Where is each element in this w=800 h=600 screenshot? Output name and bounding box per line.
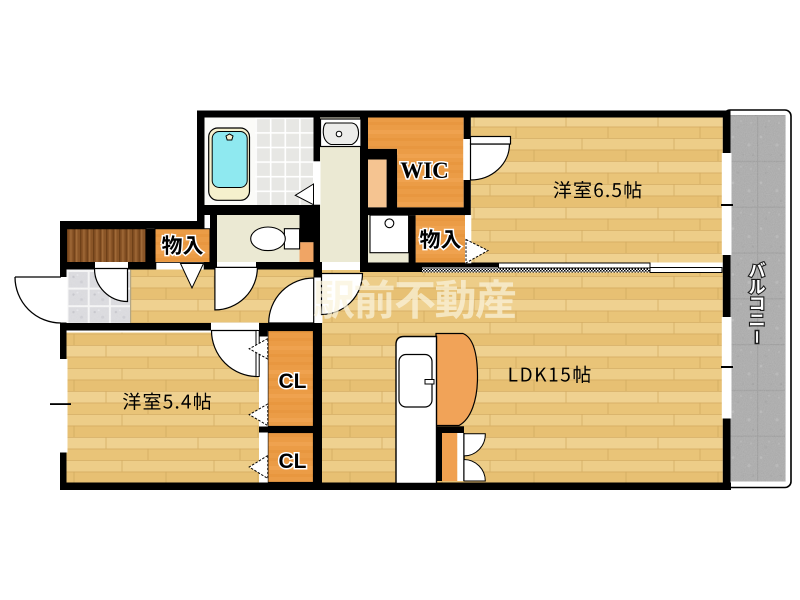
svg-text:CL: CL xyxy=(279,370,307,393)
svg-text:CL: CL xyxy=(279,450,307,473)
svg-text:WIC: WIC xyxy=(400,158,449,183)
